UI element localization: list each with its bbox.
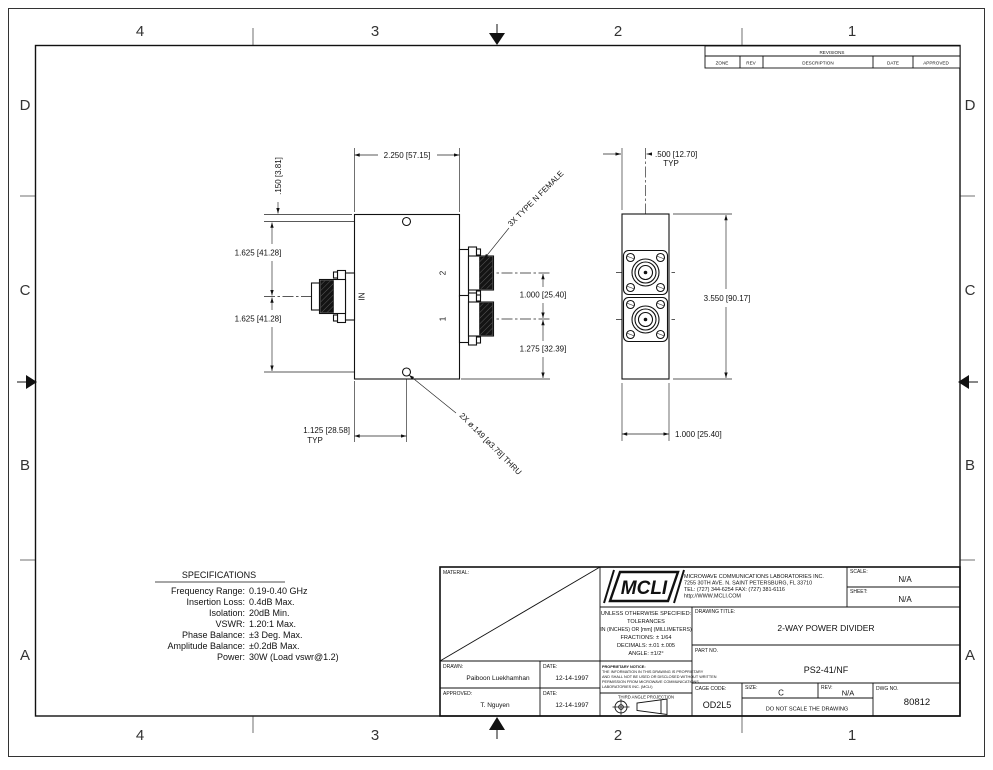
dim-port1-offset: 1.275 [32.39] [520,345,567,354]
spec-label-vswr: VSWR: [215,619,245,629]
spec-value-amplitude-balance: ±0.2dB Max. [249,641,299,651]
rev-value: N/A [842,689,855,698]
zone-left-d: D [20,97,31,114]
divider-body-front [355,215,460,380]
label-port-2: 2 [439,270,448,275]
spec-value-isolation: 20dB Min. [249,608,290,618]
revisions-col-rev: REV [746,61,756,66]
dim-body-width: 2.250 [57.15] [384,151,431,160]
dim-hole-x: 1.125 [28.58] [303,426,350,435]
spec-value-vswr: 1.20:1 Max. [249,619,296,629]
company-phone: TEL: (727) 344-6254 FAX: (727) 381-6116 [684,587,785,593]
dim-upper-half: 1.625 [41.28] [235,249,282,258]
drawing-title-value: 2-WAY POWER DIVIDER [777,623,874,633]
zone-left-a: A [20,647,30,664]
drawing-canvas: 4 3 2 1 4 3 2 1 D C B A D C B A REVISION… [0,0,993,765]
label-port-in: IN [358,292,367,300]
revisions-table: REVISIONS ZONE REV DESCRIPTION DATE APPR… [705,46,960,68]
proprietary-line2: THE INFORMATION IN THIS DRAWING IS PROPR… [602,670,704,674]
spec-label-frequency: Frequency Range: [171,586,245,596]
cage-code-label: CAGE CODE: [695,686,726,692]
flange-port2 [624,251,668,295]
approved-label: APPROVED: [443,691,472,697]
tolerance-line6: ANGLE: ±1/2° [628,651,663,657]
revisions-title: REVISIONS [819,50,844,55]
spec-value-insertion-loss: 0.4dB Max. [249,597,295,607]
dwg-no-label: DWG NO. [876,686,899,692]
proprietary-line3: AND SHALL NOT BE USED OR DISCLOSED WITHO… [602,675,717,679]
divider-body-side [622,214,669,379]
drawing-title-label: DRAWING TITLE: [695,609,735,615]
dim-body-height: 3.550 [90.17] [704,294,751,303]
zone-bottom-4: 4 [136,727,144,744]
zone-right-c: C [965,282,976,299]
mounting-hole-top [403,218,411,226]
flange-port1 [624,298,668,342]
no-scale-note: DO NOT SCALE THE DRAWING [766,707,849,713]
zone-right-a: A [965,647,975,664]
label-port-1: 1 [439,316,448,321]
proprietary-line4: PERMISSION FROM MICROWAVE COMMUNICATIONS [602,680,699,684]
zone-top-1: 1 [848,23,856,40]
part-no-value: PS2-41/NF [804,665,849,675]
zone-left-b: B [20,457,30,474]
company-url: http://WWW.MCLI.COM [684,594,741,600]
revisions-col-zone: ZONE [716,61,729,66]
scale-value: N/A [898,575,912,584]
dim-lower-half: 1.625 [41.28] [235,315,282,324]
company-address: 7255 30TH AVE. N. SAINT PETERSBURG, FL 3… [684,581,812,587]
spec-label-insertion-loss: Insertion Loss: [186,597,245,607]
size-value: C [778,689,784,698]
dwg-no-value: 80812 [904,697,930,708]
mounting-hole-bottom [403,368,411,376]
drawn-label: DRAWN: [443,664,463,670]
spec-label-power: Power: [217,652,245,662]
tolerance-line5: DECIMALS: ±.01 ±.005 [617,643,675,649]
revisions-col-description: DESCRIPTION [802,61,833,66]
spec-value-frequency: 0.19-0.40 GHz [249,586,308,596]
dim-flange-offset: .500 [12.70] [655,150,697,159]
zone-right-d: D [965,97,976,114]
specifications-title: SPECIFICATIONS [182,570,256,580]
spec-label-phase-balance: Phase Balance: [182,630,245,640]
size-label: SIZE: [745,685,758,691]
dim-body-depth: 1.000 [25.40] [675,430,722,439]
drawn-date: 12-14-1997 [555,675,589,682]
revisions-col-approved: APPROVED [923,61,949,66]
proprietary-line5: LABORATORIES INC. (MCLI) [602,685,653,689]
dim-hole-offset-top: .150 [3.81] [274,157,283,195]
approved-name: T. Nguyen [480,702,510,709]
spec-label-amplitude-balance: Amplitude Balance: [167,641,245,651]
tolerance-line3: IN (INCHES) OR [mm] (MILLIMETERS) [600,627,692,633]
spec-label-isolation: Isolation: [209,608,245,618]
tolerance-line4: FRACTIONS: ± 1/64 [621,635,672,641]
approved-date: 12-14-1997 [555,702,589,709]
zone-bottom-3: 3 [371,727,379,744]
zone-bottom-1: 1 [848,727,856,744]
approved-date-label: DATE: [543,691,557,697]
dim-port-spacing: 1.000 [25.40] [520,291,567,300]
zone-right-b: B [965,457,975,474]
sheet-border [9,9,985,757]
tolerance-line2: TOLERANCES [627,619,665,625]
proprietary-line1: PROPRIETARY NOTICE: [602,665,646,669]
zone-bottom-2: 2 [614,727,622,744]
spec-value-power: 30W (Load vswr@1.2) [249,652,339,662]
tolerance-line1: UNLESS OTHERWISE SPECIFIED: [601,611,692,617]
dim-hole-x-typ: TYP [307,436,323,445]
engineering-drawing-sheet: 4 3 2 1 4 3 2 1 D C B A D C B A REVISION… [0,0,993,765]
dim-flange-offset-typ: TYP [663,159,679,168]
cage-code-value: OD2L5 [703,700,732,710]
revisions-col-date: DATE [887,61,899,66]
logo-text: MCLI [621,578,668,599]
spec-value-phase-balance: ±3 Deg. Max. [249,630,302,640]
drawn-date-label: DATE: [543,664,557,670]
drawn-name: Paiboon Luekhamhan [466,675,530,682]
zone-top-3: 3 [371,23,379,40]
zone-top-2: 2 [614,23,622,40]
scale-label: SCALE: [850,569,868,575]
sheet-value: N/A [898,595,912,604]
zone-left-c: C [20,282,31,299]
rev-label: REV: [821,685,832,691]
sheet-label: SHEET: [850,589,868,595]
material-label: MATERIAL: [443,570,469,576]
part-no-label: PART NO. [695,648,718,654]
zone-top-4: 4 [136,23,144,40]
company-name: MICROWAVE COMMUNICATIONS LABORATORIES IN… [684,574,824,580]
